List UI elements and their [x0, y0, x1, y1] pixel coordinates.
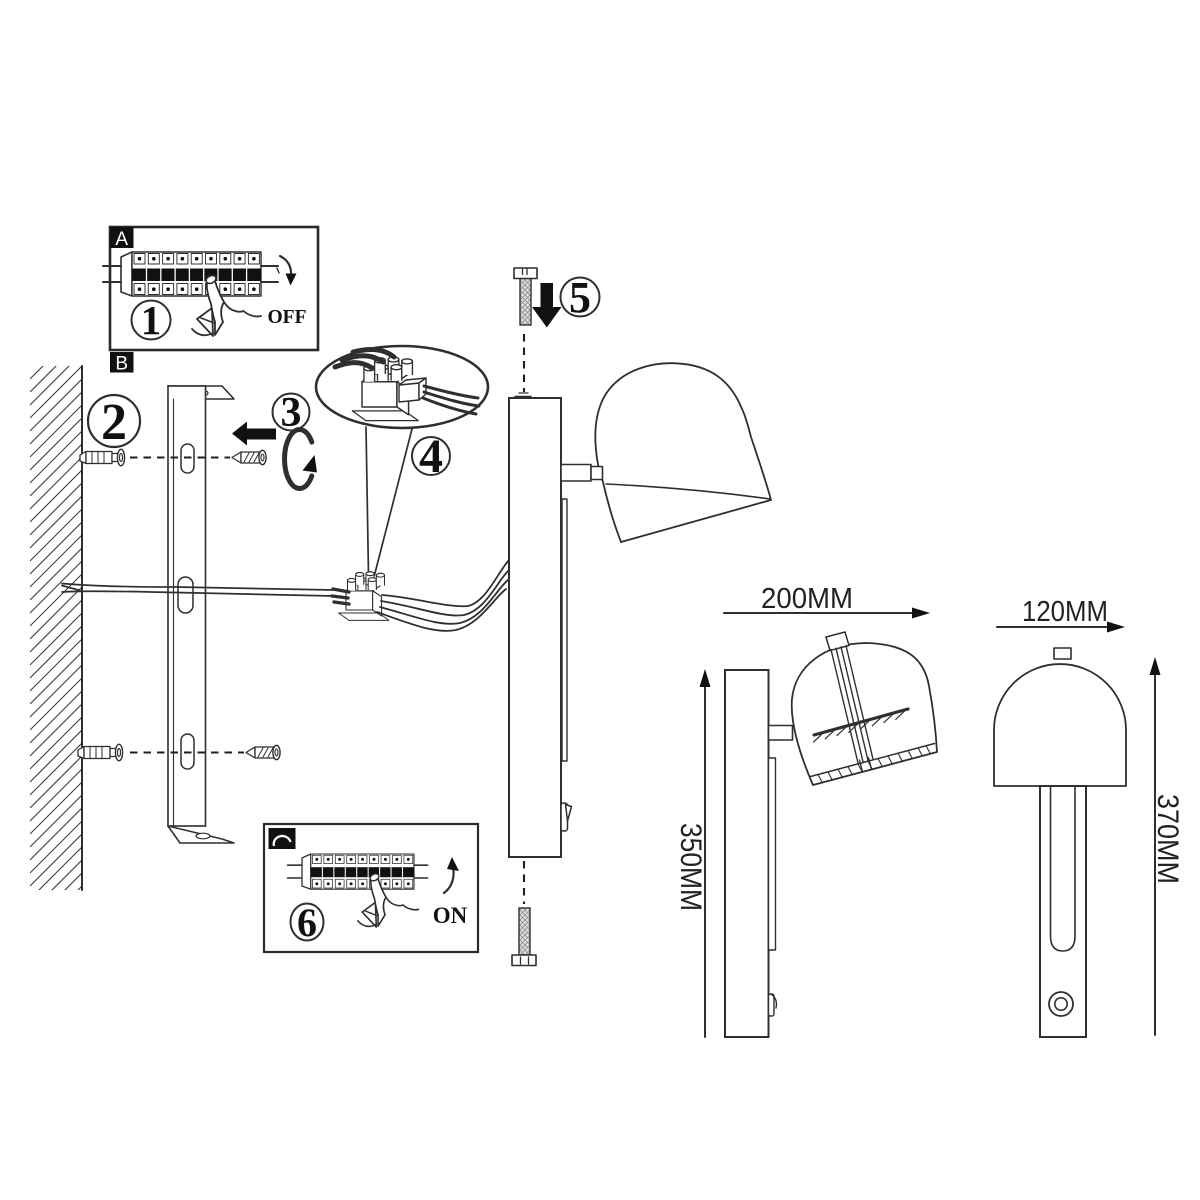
svg-text:4: 4 — [419, 430, 443, 483]
svg-text:200MM: 200MM — [761, 583, 853, 615]
svg-text:5: 5 — [569, 273, 591, 322]
svg-text:ON: ON — [433, 903, 468, 928]
svg-text:120MM: 120MM — [1022, 596, 1108, 628]
svg-text:OFF: OFF — [268, 307, 307, 328]
svg-text:B: B — [115, 354, 128, 375]
svg-text:2: 2 — [101, 394, 127, 451]
svg-text:1: 1 — [141, 297, 162, 343]
svg-text:350MM: 350MM — [674, 823, 707, 911]
svg-text:370MM: 370MM — [1151, 794, 1184, 884]
svg-text:6: 6 — [297, 900, 317, 945]
svg-text:A: A — [115, 229, 128, 250]
